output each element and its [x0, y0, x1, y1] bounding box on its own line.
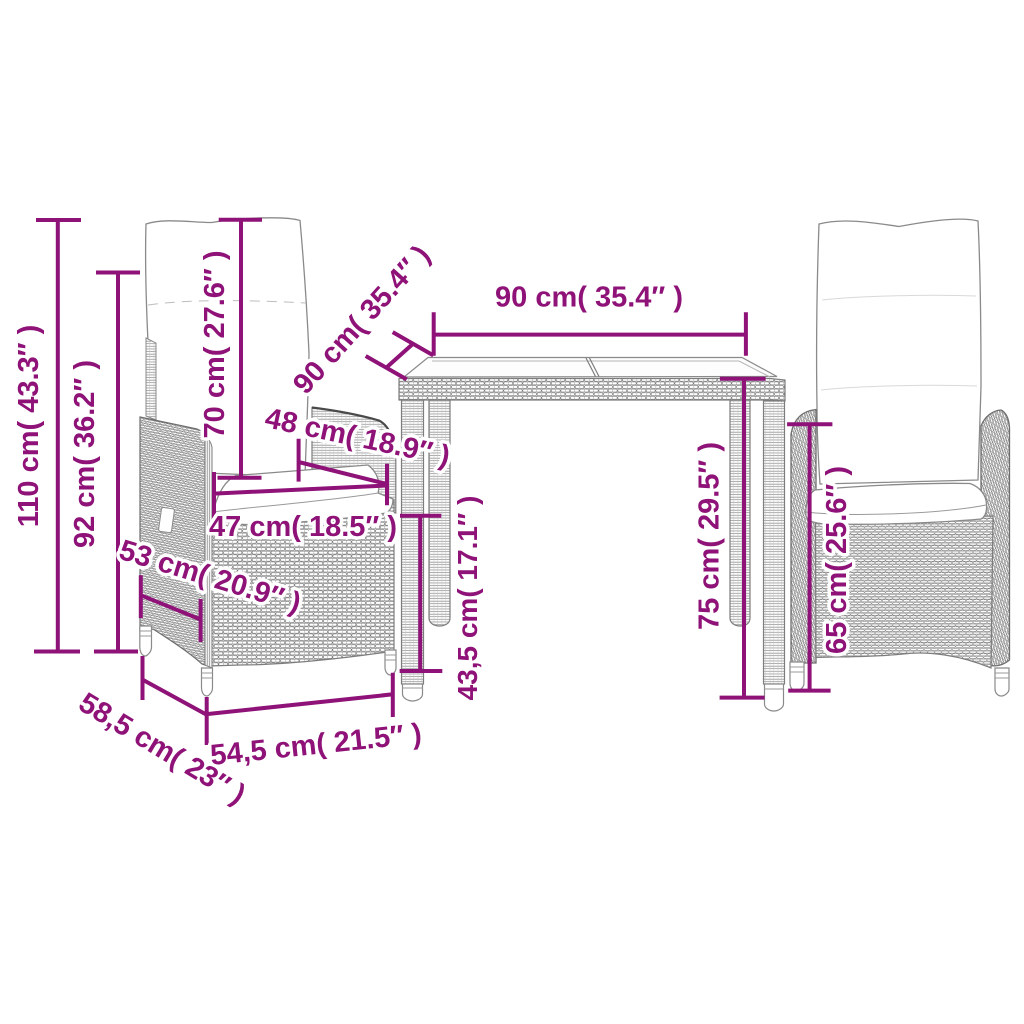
svg-text:43,5 cm( 17.1″ ): 43,5 cm( 17.1″ ) — [452, 496, 483, 701]
svg-text:92 cm( 36.2″ ): 92 cm( 36.2″ ) — [69, 360, 101, 548]
svg-text:47 cm( 18.5″ ): 47 cm( 18.5″ ) — [209, 511, 397, 543]
svg-text:75 cm( 29.5″ ): 75 cm( 29.5″ ) — [694, 442, 726, 630]
svg-text:65 cm( 25.6″ ): 65 cm( 25.6″ ) — [821, 466, 853, 654]
svg-text:110 cm( 43.3″ ): 110 cm( 43.3″ ) — [13, 325, 45, 528]
svg-text:90 cm( 35.4″ ): 90 cm( 35.4″ ) — [495, 282, 683, 314]
svg-text:70 cm( 27.6″ ): 70 cm( 27.6″ ) — [199, 251, 231, 439]
